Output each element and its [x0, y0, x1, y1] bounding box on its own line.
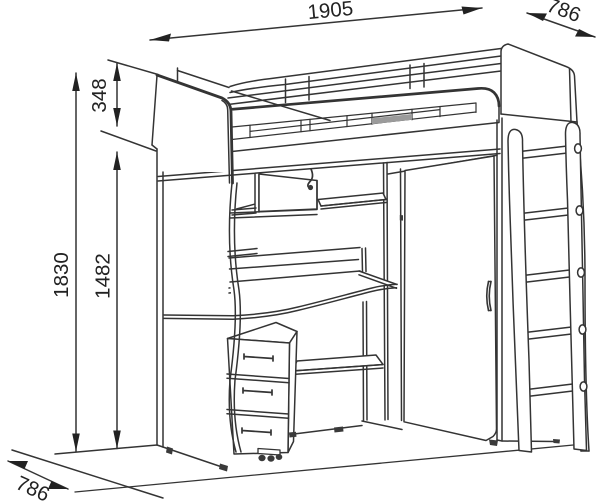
- svg-text:1482: 1482: [92, 253, 115, 299]
- svg-text:1830: 1830: [50, 252, 73, 298]
- svg-text:786: 786: [12, 472, 53, 501]
- svg-text:786: 786: [544, 0, 584, 27]
- svg-text:348: 348: [88, 78, 111, 112]
